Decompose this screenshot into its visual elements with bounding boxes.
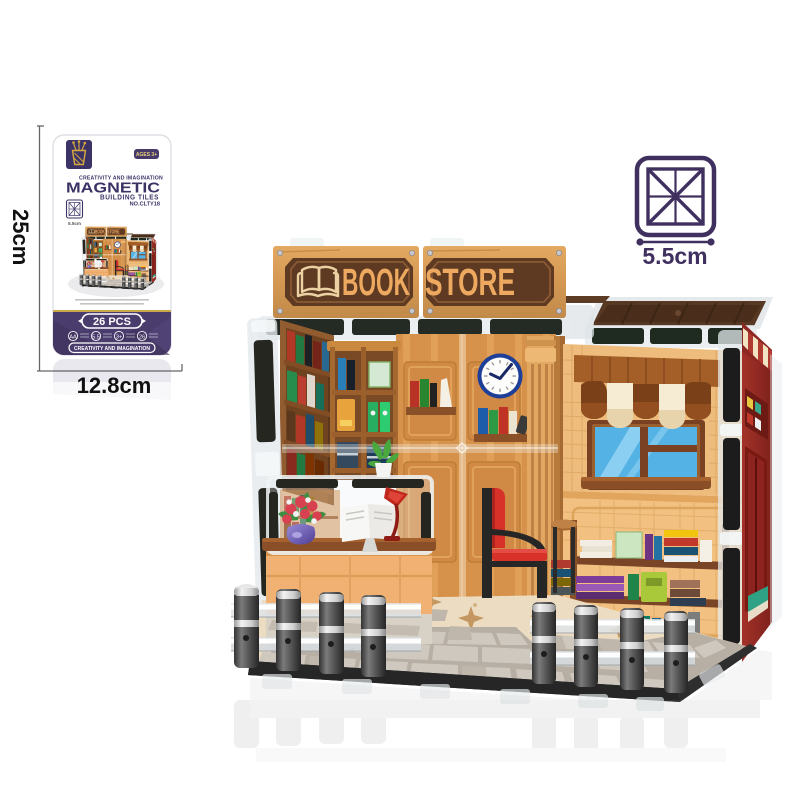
svg-text:5.5cm: 5.5cm [642,243,707,269]
svg-text:BUILDING TILES: BUILDING TILES [100,193,159,202]
svg-text:5.5: 5.5 [92,335,100,341]
svg-text:5.5cm: 5.5cm [68,221,81,226]
svg-text:NO.CLTY18: NO.CLTY18 [130,202,160,208]
svg-text:3+: 3+ [116,335,122,341]
svg-text:CREATIVITY AND IMAGINATION: CREATIVITY AND IMAGINATION [74,346,150,352]
svg-text:25cm: 25cm [8,209,33,265]
svg-text:AGES 3+: AGES 3+ [136,152,157,158]
svg-text:26 PCS: 26 PCS [93,316,131,328]
svg-text:26: 26 [139,335,145,341]
svg-text:AA: AA [69,335,77,341]
svg-text:12.8cm: 12.8cm [77,373,152,398]
